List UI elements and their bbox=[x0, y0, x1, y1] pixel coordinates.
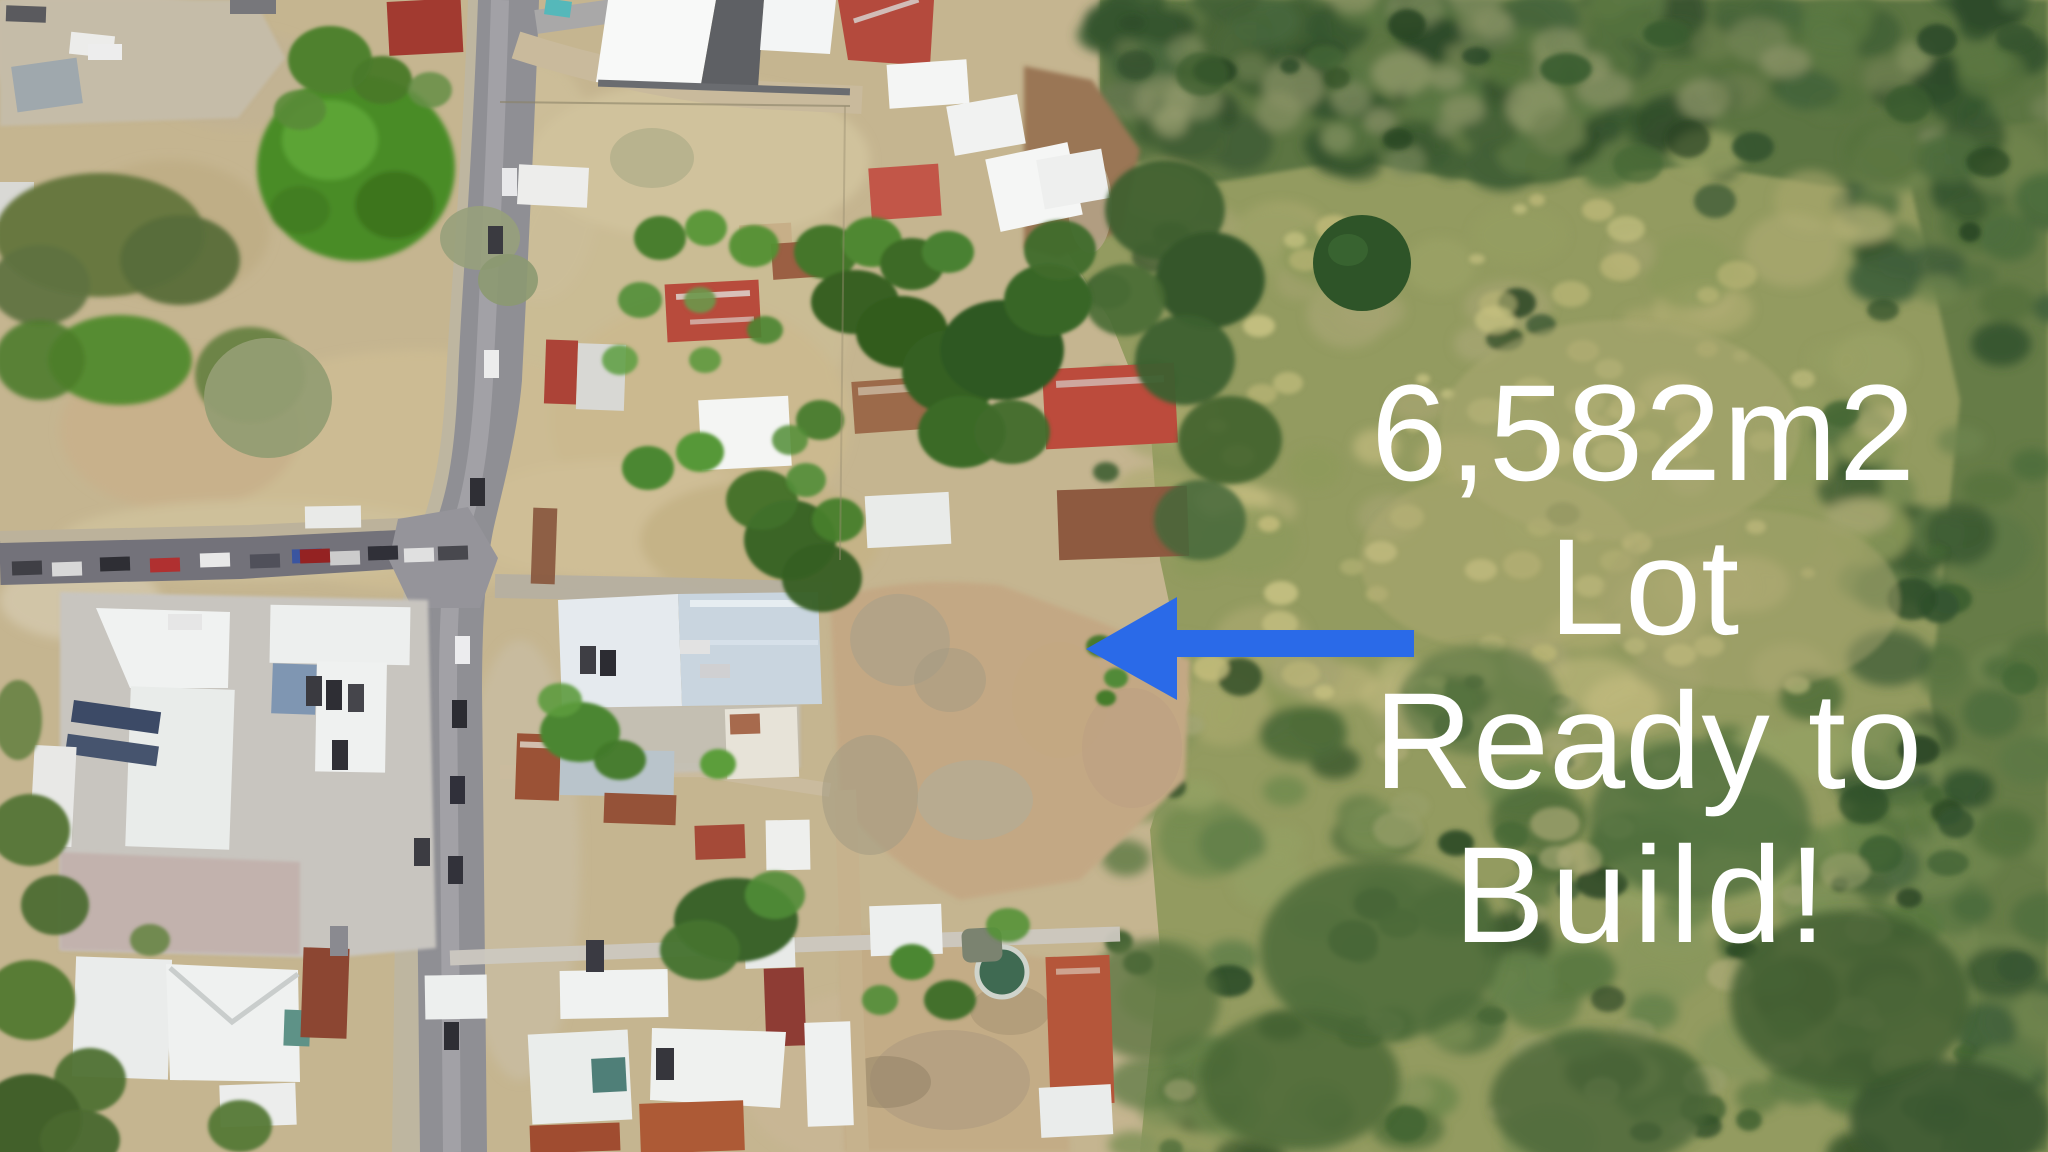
svg-text:Build!: Build! bbox=[1454, 819, 1833, 972]
svg-text:Ready to: Ready to bbox=[1374, 665, 1922, 818]
svg-text:6,582m2: 6,582m2 bbox=[1371, 357, 1917, 510]
svg-text:Lot: Lot bbox=[1549, 511, 1739, 664]
